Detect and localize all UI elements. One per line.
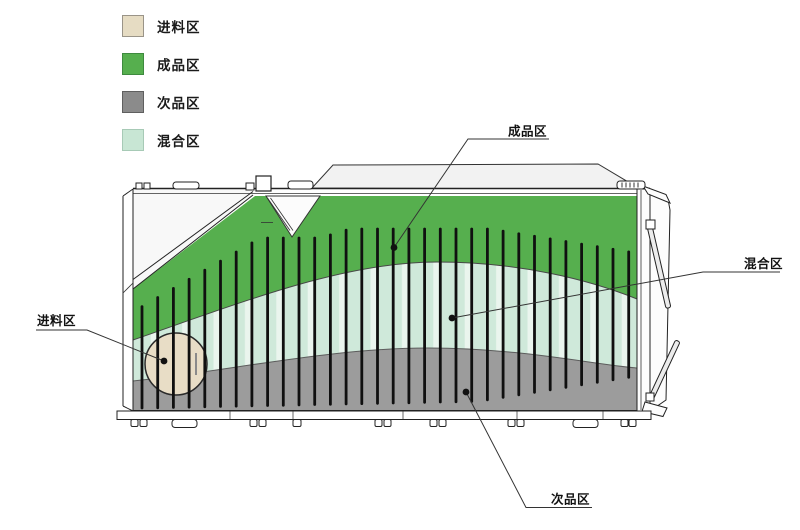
machine-body	[117, 164, 680, 428]
callout-finished-label: 成品区	[508, 124, 547, 139]
left-strip-bottom-bevel	[123, 406, 133, 411]
top-handle-left	[173, 182, 199, 189]
top-lug-b	[246, 183, 254, 190]
legend-swatch-feed	[122, 15, 144, 37]
top-handle-right	[617, 181, 645, 189]
machine-foot	[629, 420, 636, 427]
legend-swatch-finished	[122, 53, 144, 75]
right-latch-lower-hinge	[646, 393, 654, 401]
legend-swatch-defective	[122, 91, 144, 113]
machine-feet	[131, 420, 636, 428]
diagram-page: 进料区 成品区 次品区 混合区	[0, 0, 800, 530]
callout-mixed-label: 混合区	[744, 256, 783, 271]
machine-foot	[375, 420, 382, 427]
right-latch-upper-hinge	[646, 220, 655, 229]
machine-foot	[131, 420, 138, 427]
top-handle-center	[288, 181, 313, 189]
feed-zone-circle	[145, 333, 207, 395]
legend-item-finished: 成品区	[122, 53, 201, 74]
machine-foot	[430, 420, 437, 427]
legend-item-mixed: 混合区	[122, 129, 201, 150]
machine-foot	[293, 420, 301, 427]
legend-item-defective: 次品区	[122, 91, 201, 112]
legend-label-mixed: 混合区	[157, 130, 201, 150]
callout-defective-label: 次品区	[551, 492, 590, 507]
legend-swatch-mixed	[122, 129, 144, 151]
deck-surface	[312, 164, 640, 189]
machine-foot	[384, 420, 391, 427]
machine-foot-wide	[573, 420, 598, 428]
top-lug-a1	[136, 183, 142, 189]
machine-foot	[250, 420, 257, 427]
legend: 进料区 成品区 次品区 混合区	[122, 15, 201, 167]
machine-foot	[621, 420, 628, 427]
left-strip-top-bevel	[123, 189, 133, 196]
callout-finished-dot	[391, 244, 398, 251]
machine-foot	[508, 420, 515, 427]
callout-mixed-dot	[449, 315, 456, 322]
left-strip-deck-line	[123, 283, 133, 293]
machine-foot	[439, 420, 446, 427]
machine-foot-wide	[172, 420, 197, 428]
callout-feed-label: 进料区	[37, 313, 76, 328]
legend-label-defective: 次品区	[157, 92, 201, 112]
top-lug-a2	[144, 183, 150, 189]
callout-defective-dot	[463, 389, 470, 396]
legend-label-feed: 进料区	[157, 16, 201, 36]
legend-label-finished: 成品区	[157, 54, 201, 74]
callout-feed-dot	[161, 358, 168, 365]
feed-inlet-box	[256, 176, 271, 191]
machine-diagram: 成品区 混合区 进料区 次品区	[0, 0, 800, 530]
bottom-rail	[117, 411, 651, 420]
legend-item-feed: 进料区	[122, 15, 201, 36]
machine-foot	[140, 420, 147, 427]
machine-foot	[259, 420, 266, 427]
machine-foot	[517, 420, 524, 427]
